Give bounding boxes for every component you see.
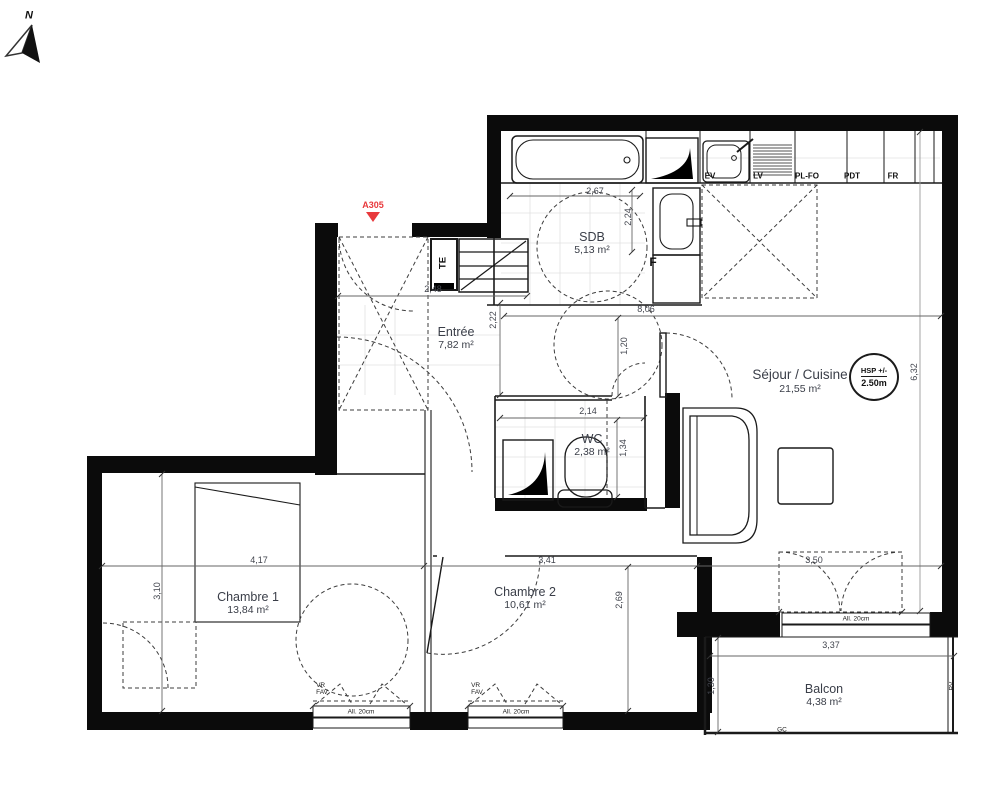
room-balcon-name: Balcon (805, 682, 843, 696)
f-cabinet-label: F (649, 256, 656, 270)
tile-grid (337, 158, 940, 498)
vanity-unit (646, 138, 698, 183)
dim-balcon-height: 1,30 (706, 677, 716, 695)
room-sejour-name: Séjour / Cuisine (752, 367, 847, 383)
floor-plan-drawing (0, 0, 1006, 800)
dim-wc-width: 2,14 (579, 406, 597, 416)
room-sdb-area: 5,13 m² (574, 244, 610, 256)
gc-note: GC (777, 726, 787, 733)
coffee-table (778, 448, 833, 504)
entrance-marker-icon (366, 212, 380, 222)
room-balcon-area: 4,38 m² (806, 696, 842, 708)
unit-code-label: A305 (362, 200, 384, 210)
dim-chambre2-height: 2,69 (614, 591, 624, 609)
dim-balcon-width: 3,37 (822, 640, 840, 650)
wc-washbasin (503, 440, 553, 500)
room-chambre2-name: Chambre 2 (494, 585, 556, 599)
hsp-value: 2.50m (861, 376, 887, 388)
sofa (683, 408, 757, 543)
room-entree-name: Entrée (438, 325, 475, 339)
window1-shutter-note: VR FAV (316, 683, 328, 697)
electrical-panel-label: TE (439, 257, 450, 269)
north-label: N (25, 10, 33, 23)
cooktop-oven-label: PL-FO (795, 171, 819, 180)
fav-label: FAV (316, 690, 328, 697)
room-chambre2-area: 10,61 m² (504, 599, 545, 611)
fridge-label: FR (888, 171, 899, 180)
worktop-label: PDT (844, 171, 860, 180)
ceiling-height-badge: HSP +/- 2.50m (849, 353, 899, 401)
dim-chambre1-width: 4,17 (250, 555, 268, 565)
dim-chambre2-width: 3,41 (538, 555, 556, 565)
room-entree-area: 7,82 m² (438, 339, 474, 351)
room-sdb-name: SDB (579, 230, 605, 244)
dim-chambre1-height: 3,10 (152, 582, 162, 600)
dim-hall-height: 1,20 (619, 337, 629, 355)
room-sejour-area: 21,55 m² (779, 383, 820, 395)
room-wc-name: WC (582, 432, 603, 446)
window1-sill-note: All. 20cm (348, 708, 375, 715)
bathroom-washbasin (653, 188, 701, 255)
north-arrow-icon (6, 25, 40, 63)
dim-entree-height: 2,22 (488, 311, 498, 329)
room-chambre1: Chambre 1 13,84 m² (217, 590, 279, 616)
dim-sdb-width: 2,67 (586, 186, 604, 196)
dim-entree-width: 2,48 (424, 284, 442, 294)
room-chambre1-area: 13,84 m² (227, 604, 268, 616)
pv-note: PV (948, 682, 955, 691)
window2-sill-note: All. 20cm (503, 708, 530, 715)
walls (87, 115, 958, 730)
hsp-label: HSP +/- (861, 366, 887, 375)
f-cabinet (653, 255, 700, 303)
room-wc: WC 2,38 m² (574, 432, 610, 458)
dim-balcony-door-width: 3,50 (805, 555, 823, 565)
dim-sejour-height: 6,32 (909, 363, 919, 381)
dim-sejour-width: 8,06 (637, 304, 655, 314)
room-chambre2: Chambre 2 10,61 m² (494, 585, 556, 611)
dim-sdb-height: 2,24 (623, 208, 633, 226)
dim-wc-height: 1,34 (618, 439, 628, 457)
room-sejour: Séjour / Cuisine 21,55 m² (752, 367, 847, 395)
room-sdb: SDB 5,13 m² (574, 230, 610, 256)
window2-shutter-note: VR FAV (471, 683, 483, 697)
room-entree: Entrée 7,82 m² (438, 325, 475, 351)
bathtub (512, 136, 643, 183)
room-chambre1-name: Chambre 1 (217, 590, 279, 604)
room-wc-area: 2,38 m² (574, 446, 610, 458)
room-balcon: Balcon 4,38 m² (805, 682, 843, 708)
balcony-door-sill-note: All. 20cm (843, 615, 870, 622)
fav-label: FAV (471, 690, 483, 697)
kitchen-sink-label: EV (705, 171, 716, 180)
dishwasher-label: LV (753, 171, 763, 180)
floor-plan: N A305 SDB 5,13 m² Entrée 7,82 m² Séjour… (0, 0, 1006, 800)
